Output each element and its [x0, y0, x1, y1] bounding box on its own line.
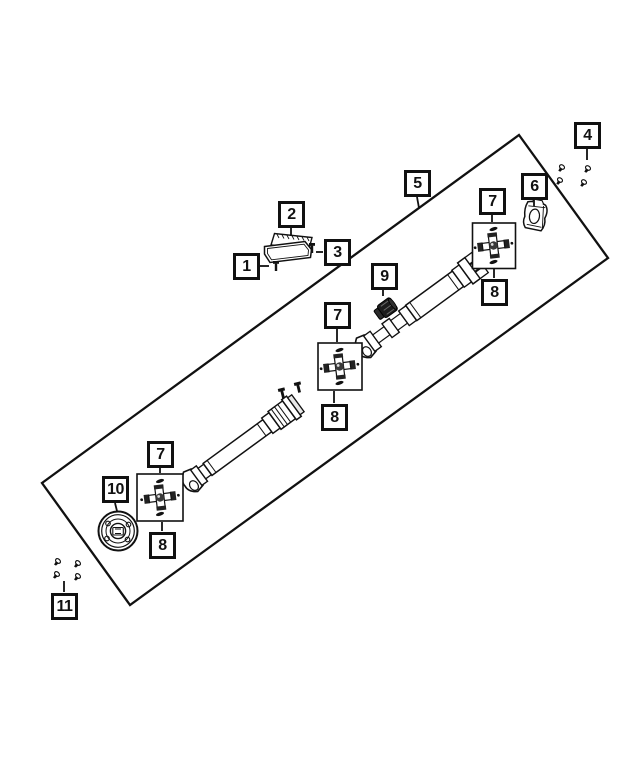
- callout-box-2[interactable]: 2: [278, 201, 305, 228]
- callout-box-7c[interactable]: 7: [147, 441, 174, 468]
- screw-set-icon: [555, 164, 592, 188]
- callout-box-8b[interactable]: 8: [321, 404, 348, 431]
- callout-box-8a[interactable]: 8: [481, 279, 508, 306]
- callout-box-1[interactable]: 1: [233, 253, 260, 280]
- u-joint-box-middle: [318, 343, 362, 390]
- diagram-artwork: [0, 0, 640, 777]
- companion-flange-icon: [99, 512, 138, 551]
- callout-box-11[interactable]: 11: [51, 593, 78, 620]
- bolt-set-icon: [52, 558, 82, 582]
- callout-box-9[interactable]: 9: [371, 263, 398, 290]
- parts-diagram: 12345678787891011: [0, 0, 640, 777]
- callout-box-7b[interactable]: 7: [324, 302, 351, 329]
- u-joint-box-upper: [472, 223, 515, 269]
- callout-box-4[interactable]: 4: [574, 122, 601, 149]
- bolt-icon-1: [273, 261, 279, 271]
- callout-box-3[interactable]: 3: [324, 239, 351, 266]
- callout-box-7a[interactable]: 7: [479, 188, 506, 215]
- support-bracket-icon: [265, 234, 313, 263]
- callout-box-5[interactable]: 5: [404, 170, 431, 197]
- front-drive-shaft-icon: [177, 393, 305, 496]
- callout-box-6[interactable]: 6: [521, 173, 548, 200]
- end-yoke-icon: [522, 198, 548, 231]
- callout-box-8c[interactable]: 8: [149, 532, 176, 559]
- u-joint-box-lower: [137, 474, 183, 521]
- callout-box-10[interactable]: 10: [102, 476, 129, 503]
